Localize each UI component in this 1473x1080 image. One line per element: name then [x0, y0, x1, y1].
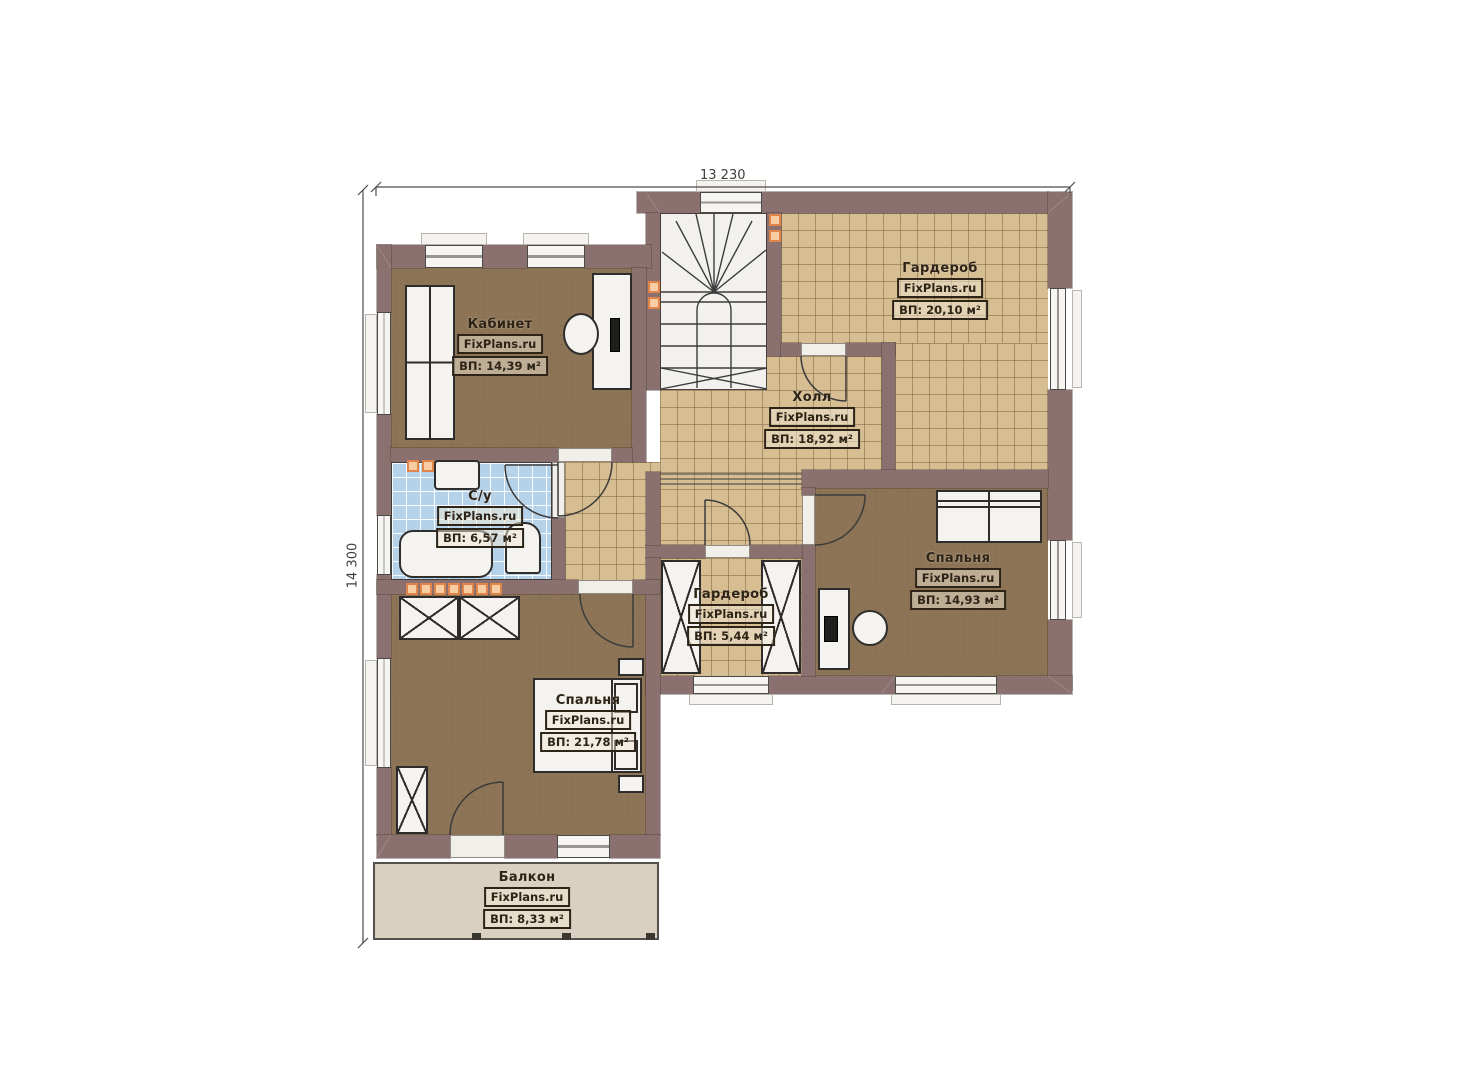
room-area: ВП: 5,44 м² [687, 626, 775, 646]
window [700, 192, 762, 213]
window-sill [365, 314, 377, 413]
radiator-marker [406, 583, 418, 595]
brand-badge: FixPlans.ru [688, 604, 775, 624]
window [527, 245, 585, 268]
window-sill [365, 660, 377, 766]
brand-badge: FixPlans.ru [769, 407, 856, 427]
vent-marker [422, 460, 434, 472]
wall [612, 448, 632, 462]
brand-badge: FixPlans.ru [484, 887, 571, 907]
door-threshold [558, 448, 612, 462]
room-floor-hall-lower [660, 472, 802, 545]
nightstand [618, 658, 644, 676]
window-sill [523, 233, 589, 245]
wall [750, 545, 802, 558]
window [557, 835, 610, 858]
radiator-marker [434, 583, 446, 595]
wall [769, 676, 895, 694]
dimension-height-label: 14 300 [345, 543, 360, 589]
vent-marker [648, 281, 660, 293]
room-label-bedroom-right: Спальня FixPlans.ru ВП: 14,93 м² [910, 551, 1006, 610]
room-area: ВП: 20,10 м² [892, 300, 988, 320]
wall [377, 835, 450, 858]
brand-badge: FixPlans.ru [457, 334, 544, 354]
window-sill [891, 694, 1001, 705]
wall [802, 545, 815, 676]
room-name: Холл [792, 390, 831, 405]
wardrobe-cabinet [399, 596, 459, 640]
vent-marker [407, 460, 419, 472]
window [895, 676, 997, 694]
office-chair [852, 610, 888, 646]
balcony-tick [562, 933, 571, 940]
room-name: Спальня [556, 693, 620, 708]
wall [1048, 390, 1072, 540]
window [377, 312, 391, 415]
room-label-bedroom-bottom: Спальня FixPlans.ru ВП: 21,78 м² [540, 693, 636, 752]
sofa [405, 285, 455, 440]
room-label-wardrobe-big: Гардероб FixPlans.ru ВП: 20,10 м² [892, 261, 988, 320]
vent-marker [769, 214, 781, 226]
brand-badge: FixPlans.ru [437, 506, 524, 526]
vent-marker [769, 230, 781, 242]
room-name: Кабинет [467, 317, 532, 332]
wall [377, 768, 391, 835]
room-area: ВП: 21,78 м² [540, 732, 636, 752]
wall [802, 470, 1048, 488]
wall-bath-right [552, 518, 565, 580]
brand-badge: FixPlans.ru [915, 568, 1002, 588]
window-sill [689, 694, 773, 705]
room-name: Балкон [499, 870, 556, 885]
wall [483, 245, 527, 268]
room-area: ВП: 8,33 м² [483, 909, 571, 929]
wall [646, 558, 660, 835]
balcony-tick [472, 933, 481, 940]
vent-marker [648, 297, 660, 309]
brand-badge: FixPlans.ru [545, 710, 632, 730]
wardrobe-cabinet [396, 766, 428, 834]
room-label-office: Кабинет FixPlans.ru ВП: 14,39 м² [452, 317, 548, 376]
radiator-marker [448, 583, 460, 595]
balcony-tick [646, 933, 655, 940]
room-area: ВП: 18,92 м² [764, 429, 860, 449]
wall [1048, 192, 1072, 288]
radiator-marker [462, 583, 474, 595]
door-threshold [450, 835, 505, 858]
wall [377, 415, 391, 515]
door-threshold [578, 580, 633, 594]
room-area: ВП: 14,93 м² [910, 590, 1006, 610]
door-threshold [802, 495, 815, 545]
room-name: Спальня [926, 551, 990, 566]
wall [610, 835, 660, 858]
window [425, 245, 483, 268]
wall [585, 245, 651, 268]
monitor [610, 318, 620, 352]
wall [505, 835, 557, 858]
sink [434, 460, 480, 490]
wall [882, 343, 895, 472]
stairwell-floor [660, 213, 767, 390]
wall [377, 245, 391, 312]
room-floor-wardrobe-big-lower [895, 343, 1048, 470]
window-sill [1072, 542, 1082, 618]
window [1050, 540, 1066, 620]
window [693, 676, 769, 694]
dimension-width-label: 13 230 [700, 168, 746, 183]
office-chair [563, 313, 599, 355]
wall [646, 472, 660, 545]
room-area: ВП: 14,39 м² [452, 356, 548, 376]
door-threshold [801, 343, 846, 356]
window [377, 658, 391, 768]
window [377, 515, 391, 575]
wall [646, 545, 705, 558]
door-threshold [552, 462, 565, 518]
door-threshold [705, 545, 750, 558]
radiator-marker [490, 583, 502, 595]
brand-badge: FixPlans.ru [897, 278, 984, 298]
room-label-bathroom: С/у FixPlans.ru ВП: 6,57 м² [436, 489, 524, 548]
window-sill [421, 233, 487, 245]
wall [781, 343, 801, 356]
floor-plan-canvas: 13 230 14 300 Кабинет FixPlans.ru ВП: 14… [0, 0, 1473, 1080]
wall [633, 580, 660, 594]
wall [997, 676, 1072, 694]
wardrobe-cabinet [459, 596, 520, 640]
room-name: Гардероб [902, 261, 977, 276]
radiator-marker [476, 583, 488, 595]
nightstand [618, 775, 644, 793]
room-name: Гардероб [693, 587, 768, 602]
radiator-marker [420, 583, 432, 595]
room-label-hall: Холл FixPlans.ru ВП: 18,92 м² [764, 390, 860, 449]
wall [802, 488, 815, 495]
room-name: С/у [468, 489, 492, 504]
wall [637, 192, 700, 213]
wall-office-right [632, 268, 646, 462]
wall [762, 192, 1048, 213]
window [1050, 288, 1066, 390]
sofa [936, 490, 1042, 543]
window-sill [1072, 290, 1082, 388]
monitor [824, 616, 838, 642]
room-label-wardrobe-small: Гардероб FixPlans.ru ВП: 5,44 м² [687, 587, 775, 646]
room-area: ВП: 6,57 м² [436, 528, 524, 548]
room-label-balcony: Балкон FixPlans.ru ВП: 8,33 м² [483, 870, 571, 929]
